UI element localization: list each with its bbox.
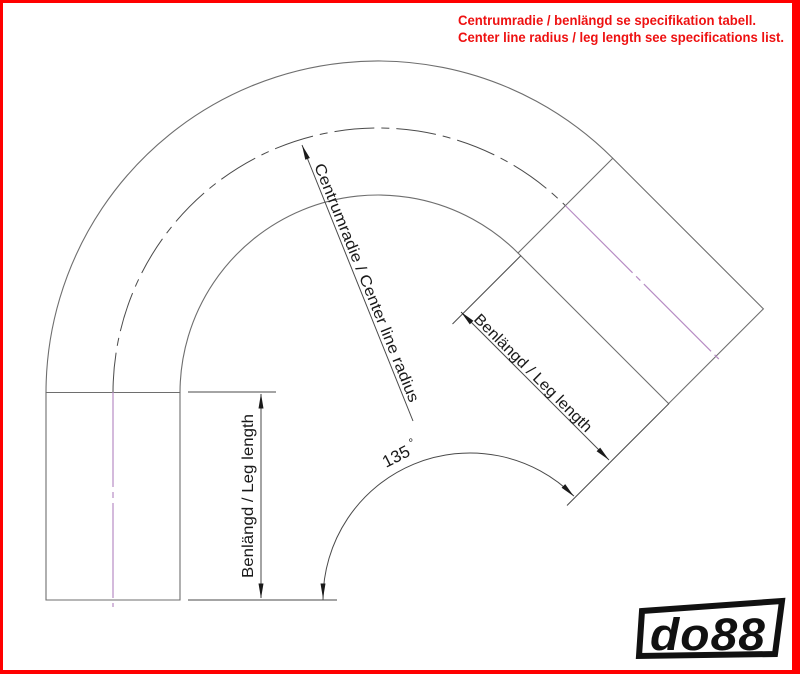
- left-leg-length-label: Benlängd / Leg length: [240, 414, 257, 578]
- page-background: [0, 0, 800, 674]
- note-line-2: Center line radius / leg length see spec…: [458, 30, 784, 45]
- border-bottom: [0, 670, 800, 674]
- do88-logo: do88: [639, 601, 782, 660]
- note-line-1: Centrumradie / benlängd se specifikation…: [458, 13, 756, 28]
- border-left: [0, 0, 3, 674]
- technical-drawing-canvas: Centrumradie / Center line radius Benlän…: [0, 0, 800, 674]
- logo-text: do88: [650, 609, 766, 660]
- border-right: [792, 0, 800, 674]
- border-top: [0, 0, 800, 3]
